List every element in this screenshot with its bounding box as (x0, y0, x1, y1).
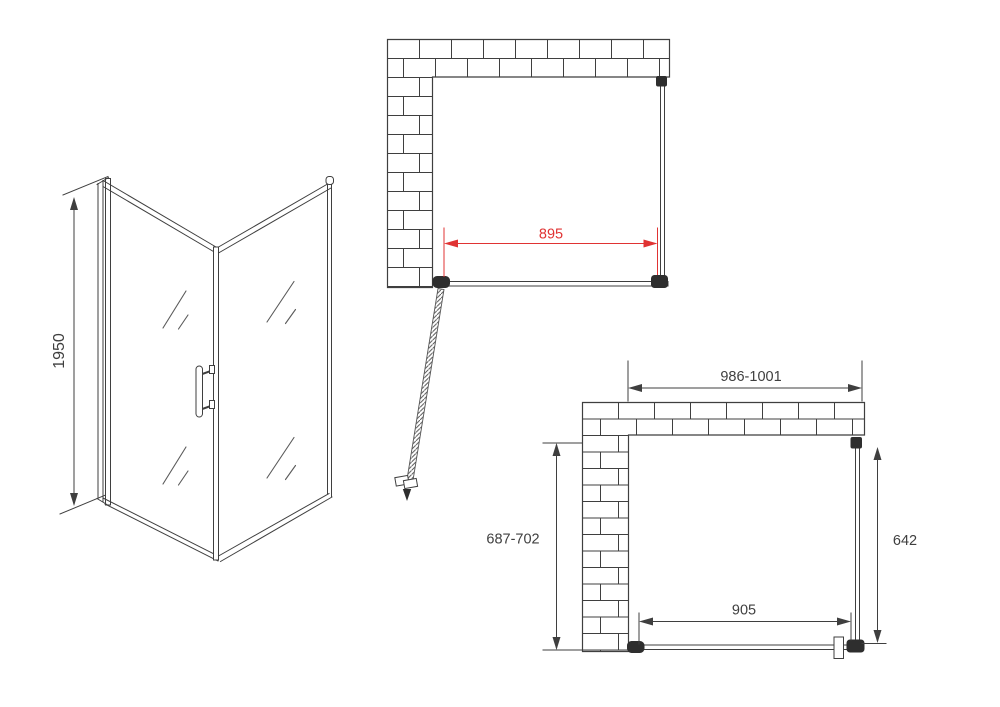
arrow-left-icon (639, 618, 653, 626)
door-leaf (406, 289, 444, 487)
arrow-left-icon (628, 384, 642, 392)
arrow-down-icon (553, 637, 561, 650)
arrow-right-icon (644, 240, 658, 248)
dim-label-depth-range: 687-702 (486, 532, 539, 548)
dim-label-front-width: 895 (539, 227, 563, 243)
arrow-right-icon (848, 384, 862, 392)
wall-bracket (657, 77, 667, 87)
corner-connector (847, 640, 864, 652)
dim-height: 1950 (51, 177, 108, 515)
brick-wall (388, 40, 670, 288)
profile-cap (326, 177, 334, 185)
technical-drawing-page: 1950 (0, 0, 1000, 707)
front-glass-panel (630, 645, 856, 650)
door-swing-open (395, 289, 444, 500)
dim-side-panel: 642 (862, 447, 917, 644)
corner-connector (652, 276, 668, 288)
dim-front-width: 895 (444, 227, 658, 278)
brick-wall (583, 403, 865, 652)
side-glass-panel (219, 177, 334, 562)
arrow-up-icon (70, 197, 78, 210)
dim-label-overall-width: 986-1001 (720, 369, 781, 385)
plan-view-dimensions: 986-1001 687-702 642 905 (486, 361, 917, 659)
dim-label-height: 1950 (51, 333, 68, 369)
door-handle (834, 637, 844, 659)
extension-line (60, 494, 108, 514)
door-handle (196, 366, 215, 418)
dim-depth-range: 687-702 (486, 443, 582, 650)
side-glass-panel (661, 86, 665, 280)
arrow-left-icon (444, 240, 458, 248)
arrow-down-icon (70, 493, 78, 506)
arrow-up-icon (553, 443, 561, 456)
arrow-down-icon (874, 630, 882, 643)
arrow-up-icon (874, 447, 882, 460)
door-wall-profile (97, 178, 111, 506)
dim-label-side-panel: 642 (893, 533, 917, 549)
door-tip (404, 490, 411, 500)
shower-enclosure-technical-drawing: 1950 (0, 0, 1000, 707)
glass-shine-marks (267, 282, 296, 480)
isometric-view: 1950 (51, 177, 334, 562)
glass-shine-marks (163, 291, 188, 485)
door-hinge (628, 642, 645, 653)
dim-overall-width: 986-1001 (628, 361, 862, 401)
extension-line (63, 177, 108, 196)
front-glass-panel (437, 282, 668, 287)
arrow-right-icon (837, 618, 851, 626)
door-handle (395, 475, 418, 488)
door-hinge (433, 277, 450, 288)
dim-label-front-glass: 905 (732, 603, 756, 619)
side-glass-panel (856, 447, 860, 647)
wall-bracket (851, 438, 862, 449)
dim-front-glass: 905 (639, 603, 851, 645)
